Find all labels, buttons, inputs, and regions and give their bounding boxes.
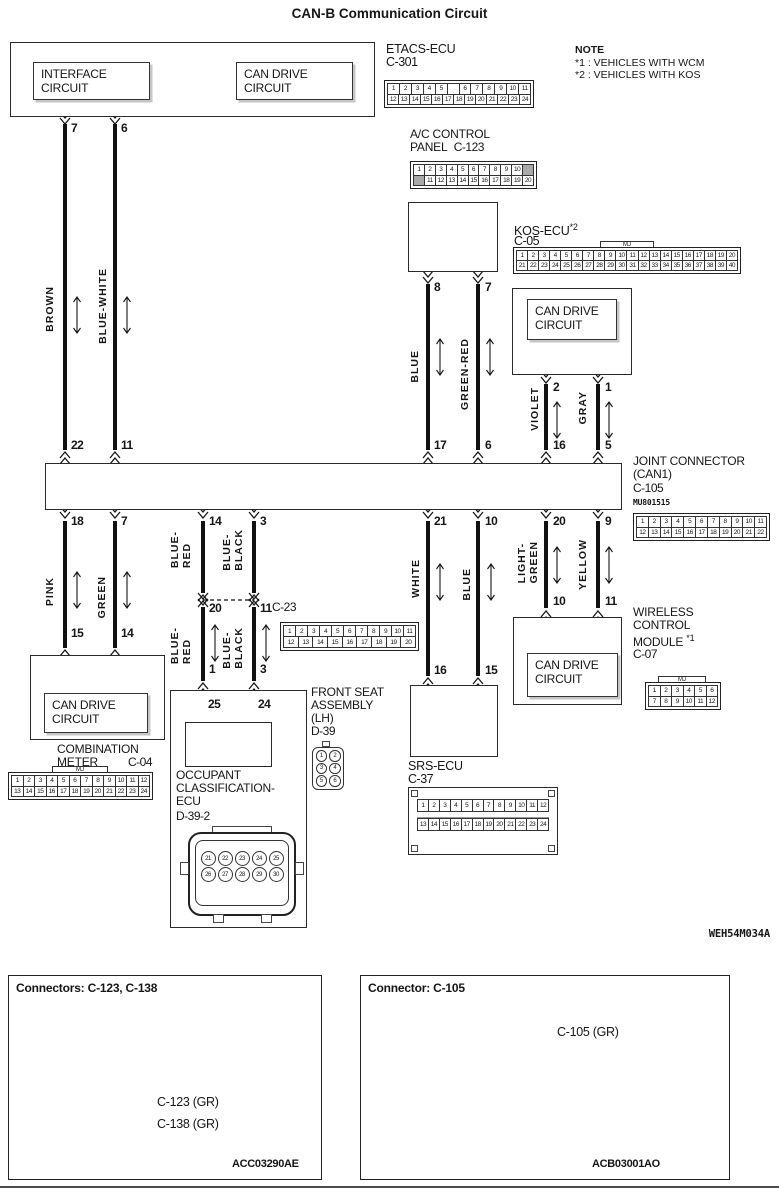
wire-label-gray: GRAY xyxy=(577,391,589,424)
wcm-connector-id: C-07 xyxy=(633,648,657,662)
photo-left-code: ACC03290AE xyxy=(232,1158,299,1170)
wire-label-text: BLUE- xyxy=(169,627,181,664)
pin-kos-2: 2 xyxy=(553,380,559,394)
pin-c23-11: 11 xyxy=(260,601,272,615)
pin-srs-16: 16 xyxy=(434,663,446,677)
photo-right-label-c105: C-105 (GR) xyxy=(557,1025,619,1039)
ac-panel-name-2-text: PANEL xyxy=(410,140,447,154)
photo-right-title: Connector: C-105 xyxy=(368,981,465,995)
connector-c37-pinout: 123456789101112131415161718192021222324 xyxy=(417,799,549,831)
wire-label-ac-blue: BLUE xyxy=(409,350,421,383)
pin-ocecu-24: 24 xyxy=(258,697,270,711)
pin-joint-21: 21 xyxy=(434,514,446,528)
pin-joint-16: 16 xyxy=(553,438,565,452)
d39-2-right-tab xyxy=(295,862,304,875)
pin-srs-15: 15 xyxy=(485,663,497,677)
connector-c301-pinout: 123456789101112131415161718192021222324 xyxy=(384,80,534,108)
pin-joint-17: 17 xyxy=(434,438,446,452)
connector-c123-pinout: 1234567891011121314151617181920 xyxy=(410,161,537,189)
wcm-note-ref: *1 xyxy=(686,633,694,643)
srs-connector-id: C-37 xyxy=(408,773,433,787)
wire-label-blue-black-lower: BLUE-BLACK xyxy=(221,627,245,669)
front-seat-connector-id: D-39 xyxy=(311,725,335,739)
kos-can-drive-box: CAN DRIVE CIRCUIT xyxy=(527,299,617,340)
d39-2-foot-left xyxy=(213,914,224,923)
combo-can-drive-box: CAN DRIVE CIRCUIT xyxy=(44,693,148,733)
wire-label-text: BLACK xyxy=(233,529,245,571)
wire-label-text: GRAY xyxy=(577,391,589,424)
wire-label-text: PINK xyxy=(44,577,56,606)
wire-label-text: GREEN xyxy=(528,541,540,583)
wire-label-text: BLUE xyxy=(409,350,421,383)
wire-label-blue-red-upper: BLUE-RED xyxy=(169,531,193,568)
wire-label-text: GREEN xyxy=(96,576,108,618)
connector-d39-pinout: 123456 xyxy=(312,747,344,790)
c37-bolt-br xyxy=(548,845,555,852)
wire-label-text: LIGHT- xyxy=(516,541,528,583)
wire-label-text: BLUE-WHITE xyxy=(97,268,109,344)
pin-joint-7: 7 xyxy=(121,514,127,528)
etacs-can-drive-box: CAN DRIVE CIRCUIT xyxy=(236,62,353,100)
pin-ac-7: 7 xyxy=(485,280,491,294)
pin-joint-20: 20 xyxy=(553,514,565,528)
pin-joint-3: 3 xyxy=(260,514,266,528)
pin-kos-1: 1 xyxy=(605,380,611,394)
wcm-name-2: CONTROL xyxy=(633,619,690,633)
wiring-diagram-page: CAN-B Communication Circuit NOTE *1 : VE… xyxy=(0,0,779,1189)
pin-combo-15: 15 xyxy=(71,626,83,640)
pin-c23-20: 20 xyxy=(209,601,221,615)
photo-left-title: Connectors: C-123, C-138 xyxy=(16,981,157,995)
wire-label-text: YELLOW xyxy=(577,539,589,590)
combo-connector-id: C-04 xyxy=(128,756,152,770)
note-heading: NOTE xyxy=(575,44,604,56)
wire-label-text: BLUE- xyxy=(169,531,181,568)
pin-joint-5: 5 xyxy=(605,438,611,452)
c23-connector-id: C-23 xyxy=(272,601,296,615)
connector-c04-pinout: 123456789101112131415161718192021222324 xyxy=(8,772,153,800)
pin-etacs-7: 7 xyxy=(71,121,77,135)
pin-joint-14: 14 xyxy=(209,514,221,528)
photo-left-label-c138: C-138 (GR) xyxy=(157,1117,219,1131)
c37-bolt-bl xyxy=(411,845,418,852)
wire-label-text: WHITE xyxy=(410,559,422,598)
pin-wcm-11: 11 xyxy=(605,594,617,608)
wire-label-text: BLACK xyxy=(233,627,245,669)
wire-label-text: BLUE- xyxy=(221,627,233,669)
connector-c07-pinout: 123456789101112 xyxy=(645,682,721,710)
pin-seat-1: 1 xyxy=(209,662,215,676)
wire-label-text: RED xyxy=(181,627,193,664)
connector-c105-pinout: 12345678910111213141516171819202122 xyxy=(633,513,770,541)
etacs-connector-id: C-301 xyxy=(386,56,418,70)
wire-label-brown: BROWN xyxy=(44,286,56,332)
srs-ecu-box xyxy=(410,685,498,757)
ac-panel-box xyxy=(408,202,498,272)
wire-label-text: BROWN xyxy=(44,286,56,332)
wire-label-violet: VIOLET xyxy=(529,387,541,431)
pin-ocecu-25: 25 xyxy=(208,697,220,711)
note-line-2: *2 : VEHICLES WITH KOS xyxy=(575,69,700,81)
joint-name-2: (CAN1) xyxy=(633,468,672,482)
pin-joint-18: 18 xyxy=(71,514,83,528)
wire-label-green-red: GREEN-RED xyxy=(459,338,471,410)
wire-label-blue-white: BLUE-WHITE xyxy=(97,268,109,344)
etacs-interface-circuit-box: INTERFACE CIRCUIT xyxy=(33,62,150,100)
pin-wcm-10: 10 xyxy=(553,594,565,608)
note-line-1: *1 : VEHICLES WITH WCM xyxy=(575,57,705,69)
connector-d39-2-pinout: 21222324252627282930 xyxy=(198,850,286,883)
ac-panel-name-2: PANEL C-123 xyxy=(410,141,484,155)
photo-right-code: ACB03001AO xyxy=(592,1158,660,1170)
c37-bolt-tl xyxy=(411,790,418,797)
joint-part-number: MU801515 xyxy=(633,496,670,510)
pin-etacs-6: 6 xyxy=(121,121,127,135)
wire-label-text: BLUE xyxy=(461,568,473,601)
wcm-can-drive-box: CAN DRIVE CIRCUIT xyxy=(527,653,618,697)
wire-label-srs-blue: BLUE xyxy=(461,568,473,601)
connector-c23-pinout: 1234567891011121314151617181920 xyxy=(280,622,419,651)
photo-left-label-c123: C-123 (GR) xyxy=(157,1095,219,1109)
pin-ac-8: 8 xyxy=(434,280,440,294)
pin-joint-6: 6 xyxy=(485,438,491,452)
kos-note-ref: *2 xyxy=(570,222,578,232)
oc-name-3: ECU xyxy=(176,795,201,809)
wire-label-text: GREEN-RED xyxy=(459,338,471,410)
page-title: CAN-B Communication Circuit xyxy=(0,6,779,21)
occupant-ecu-box xyxy=(185,722,272,767)
c37-bolt-tr xyxy=(548,790,555,797)
wire-label-green: GREEN xyxy=(96,576,108,618)
pin-combo-14: 14 xyxy=(121,626,133,640)
wire-label-text: RED xyxy=(181,531,193,568)
pin-joint-22: 22 xyxy=(71,438,83,452)
oc-connector-id: D-39-2 xyxy=(176,810,210,824)
wire-label-text: VIOLET xyxy=(529,387,541,431)
pin-joint-9: 9 xyxy=(605,514,611,528)
d39-2-foot-right xyxy=(261,914,272,923)
wire-label-light-green: LIGHT-GREEN xyxy=(516,541,540,583)
ac-panel-connector-id: C-123 xyxy=(454,140,484,154)
pin-seat-3: 3 xyxy=(260,662,266,676)
d39-2-left-tab xyxy=(180,862,189,875)
wire-label-pink: PINK xyxy=(44,577,56,606)
connector-c05-pinout: 1234567891011121314151617181920212223242… xyxy=(513,247,741,274)
joint-connector-id: C-105 xyxy=(633,482,663,496)
pin-joint-10: 10 xyxy=(485,514,497,528)
wire-label-yellow: YELLOW xyxy=(577,539,589,590)
wire-label-white: WHITE xyxy=(410,559,422,598)
wire-label-blue-red-lower: BLUE-RED xyxy=(169,627,193,664)
wire-label-text: BLUE- xyxy=(221,529,233,571)
photo-box-c105 xyxy=(360,975,730,1180)
diagram-code: WEH54M034A xyxy=(640,928,770,942)
pin-joint-11: 11 xyxy=(121,438,133,452)
photo-box-c123-c138 xyxy=(8,975,322,1180)
wire-label-blue-black-upper: BLUE-BLACK xyxy=(221,529,245,571)
joint-connector-box xyxy=(45,463,622,510)
